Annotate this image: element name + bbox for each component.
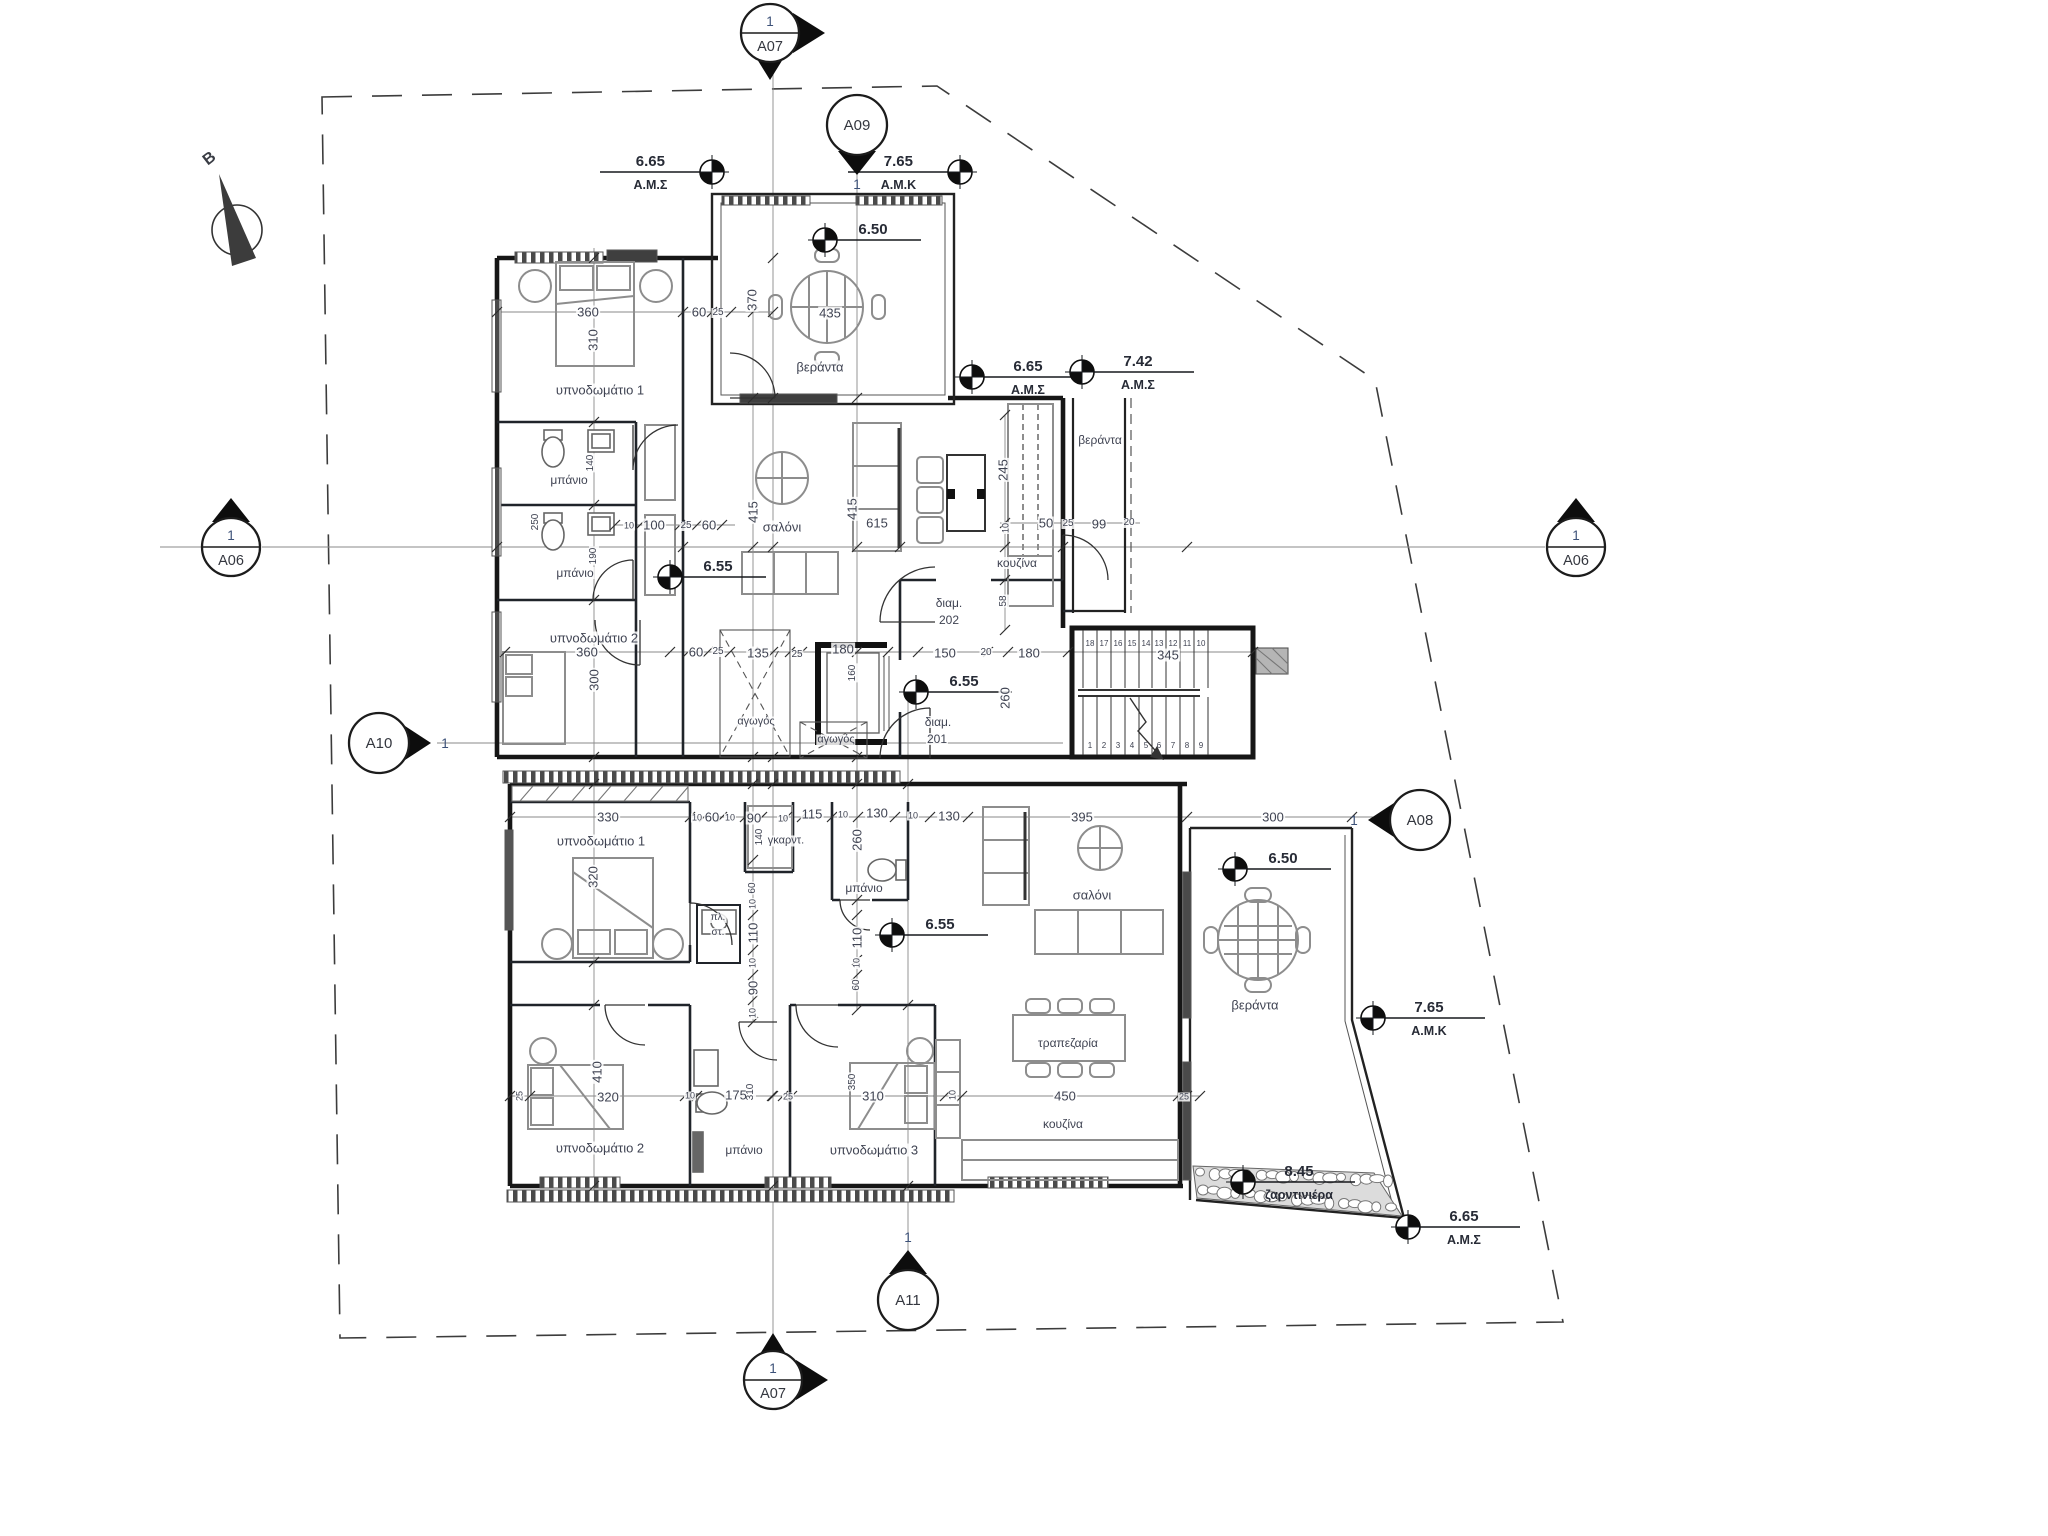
- dim-310-v: 310: [746, 1083, 756, 1102]
- dim-99: 99: [1091, 518, 1107, 531]
- dim-435-ver: 435: [818, 307, 842, 320]
- room-veranda-top: βεράντα: [795, 361, 844, 374]
- dim-10-f: 10: [777, 815, 789, 824]
- room-bedroom2-upper: υπνοδωμάτιο 2: [549, 632, 639, 645]
- dim-10-d: 10: [691, 814, 703, 823]
- dim-310-b: 310: [861, 1090, 885, 1103]
- dim-415-sofa: 415: [747, 500, 760, 524]
- duct-label-2: αγωγός: [816, 735, 855, 746]
- dim-395: 395: [1070, 811, 1094, 824]
- dim-260-hall: 260: [999, 686, 1012, 710]
- dim-100-hall: 100: [642, 519, 666, 532]
- dim-20-b: 20: [979, 648, 992, 658]
- room-dining: τραπεζαρία: [1037, 1037, 1099, 1049]
- dim-10-i: 10: [749, 898, 758, 910]
- dim-110-a: 110: [747, 922, 760, 945]
- dim-10-b: 10: [623, 522, 635, 531]
- dim-140-b: 140: [755, 828, 765, 847]
- room-veranda-upper-right: βεράντα: [1077, 434, 1123, 446]
- dim-320-bed: 320: [587, 865, 600, 889]
- dim-360-br1: 360: [576, 306, 600, 319]
- dim-60-d: 60: [704, 811, 720, 824]
- dim-10-g: 10: [837, 811, 849, 820]
- dim-90-a: 90: [746, 812, 762, 825]
- room-wardrobe: γκαρντ.: [767, 836, 805, 847]
- dim-25-a: 25: [711, 308, 724, 318]
- room-living-upper: σαλόνι: [762, 521, 802, 534]
- room-kitchen-lower: κουζίνα: [1042, 1118, 1084, 1130]
- dim-190-bath2: 190: [589, 547, 599, 566]
- dim-345-stairs: 345: [1156, 649, 1180, 662]
- dim-260-b: 260: [851, 828, 864, 852]
- dim-245: 245: [997, 458, 1010, 482]
- dim-25-g: 25: [782, 1093, 794, 1102]
- dim-300-ver: 300: [1261, 811, 1285, 824]
- dim-415-c: 415: [846, 497, 859, 521]
- dim-25-h: 25: [1178, 1093, 1190, 1102]
- dim-160-lift: 160: [848, 664, 858, 683]
- dim-130-b: 130: [937, 810, 961, 823]
- dim-25-d: 25: [711, 647, 724, 657]
- dim-110-b: 110: [851, 927, 864, 950]
- dim-180-lift: 180: [831, 643, 855, 656]
- room-bedroom1-upper: υπνοδωμάτιο 1: [555, 384, 645, 397]
- room-bath1-upper: μπάνιο: [549, 474, 588, 486]
- dim-350: 350: [848, 1073, 858, 1092]
- apt-202-line1: διαμ.: [935, 597, 964, 609]
- dim-320-b: 320: [596, 1091, 620, 1104]
- dim-10-l: 10: [853, 957, 862, 969]
- text-labels-layer: B υπνοδωμάτιο 1μπάνιομπάνιουπνοδωμάτιο 2…: [0, 0, 2048, 1536]
- dim-330: 330: [596, 811, 620, 824]
- dim-10-k: 10: [749, 1007, 758, 1019]
- closet-line1: πλ.: [710, 913, 727, 923]
- room-bedroom2-bottom: υπνοδωμάτιο 2: [555, 1142, 645, 1155]
- apt-201-line1: διαμ.: [924, 716, 953, 728]
- dim-25-e: 25: [790, 650, 803, 660]
- room-bath-bottom: μπάνιο: [724, 1144, 763, 1156]
- room-veranda-lower: βεράντα: [1230, 999, 1279, 1012]
- dim-140-bath: 140: [586, 454, 596, 473]
- dim-410: 410: [591, 1060, 604, 1084]
- duct-label-1: αγωγός: [736, 717, 775, 728]
- dim-250-wc: 250: [531, 513, 541, 532]
- dim-10-c: 10: [1002, 522, 1011, 534]
- dim-150: 150: [933, 647, 957, 660]
- room-kitchen-upper: κουζίνα: [996, 557, 1038, 569]
- dim-60-c: 60: [688, 646, 704, 659]
- dim-180-b: 180: [1017, 647, 1041, 660]
- dim-25-c: 25: [1061, 519, 1074, 529]
- dim-450: 450: [1053, 1090, 1077, 1103]
- room-bath-lower: μπάνιο: [844, 882, 883, 894]
- dim-310-br1: 310: [587, 328, 600, 352]
- room-bath2-upper: μπάνιο: [555, 567, 594, 579]
- room-bedroom1-lower: υπνοδωμάτιο 1: [556, 835, 646, 848]
- north-label: B: [200, 148, 220, 169]
- dim-10-j: 10: [749, 957, 758, 969]
- dim-10-m: 10: [684, 1092, 696, 1101]
- dim-20-a: 20: [1122, 518, 1135, 528]
- dim-25-b: 25: [679, 521, 692, 531]
- room-living-lower: σαλόνι: [1072, 889, 1112, 902]
- closet-line2: στ.: [711, 928, 726, 938]
- dim-58: 58: [999, 594, 1009, 607]
- room-bedroom3-bottom: υπνοδωμάτιο 3: [829, 1144, 919, 1157]
- apt-202-line2: 202: [938, 614, 960, 626]
- dim-90-b: 90: [747, 980, 760, 996]
- dim-60-e: 60: [748, 881, 758, 894]
- floor-plan-sheet: 181716151413121110123456789 6.65Α.Μ.Σ7.6…: [0, 0, 2048, 1536]
- dim-115: 115: [801, 808, 824, 821]
- dim-10-e: 10: [724, 814, 736, 823]
- dim-10-h: 10: [907, 812, 919, 821]
- dim-60-f: 60: [852, 978, 862, 991]
- dim-60-b: 60: [701, 519, 717, 532]
- dim-615: 615: [865, 517, 889, 530]
- dim-50: 50: [1038, 517, 1054, 530]
- dim-130-a: 130: [865, 807, 889, 820]
- dim-10-n: 10: [949, 1089, 958, 1101]
- apt-201-line2: 201: [926, 733, 948, 745]
- dim-300-br2: 300: [588, 668, 601, 692]
- dim-370-ver: 370: [746, 288, 759, 312]
- dim-25-f: 25: [516, 1090, 525, 1102]
- dim-360-br2: 360: [575, 646, 599, 659]
- dim-60-a: 60: [691, 306, 707, 319]
- dim-135: 135: [746, 647, 770, 660]
